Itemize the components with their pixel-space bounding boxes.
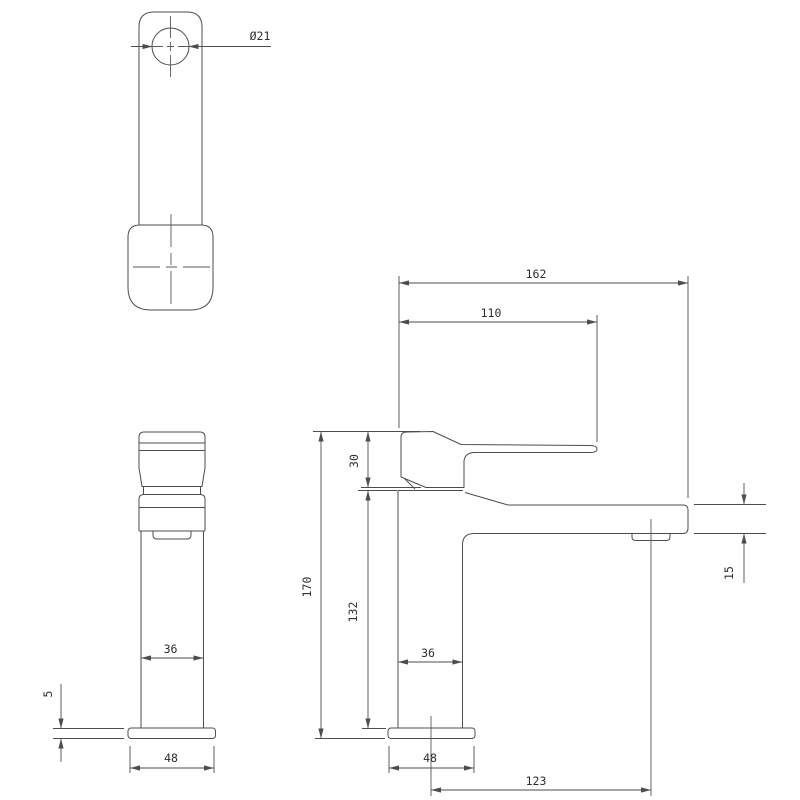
side-view: 162 110 30 170 132 36	[300, 267, 766, 796]
extension-line	[694, 505, 766, 534]
dim-side-spout-end-height: 15	[694, 483, 766, 583]
front-column-sides	[141, 531, 204, 728]
side-base-plate	[388, 728, 475, 739]
dim-side-body-depth-label: 36	[421, 646, 435, 660]
dim-front-base-thickness: 5	[41, 684, 124, 762]
front-base-plate	[128, 728, 216, 739]
front-aerator-outline	[153, 531, 191, 539]
front-view: 36 5 48	[41, 432, 216, 773]
side-handle-outline	[401, 432, 597, 488]
dim-side-overall-height-label: 170	[300, 577, 314, 598]
extension-line	[399, 276, 688, 498]
dim-side-lever-reach-label: 110	[481, 306, 502, 320]
side-body-left-top	[398, 491, 463, 729]
dim-front-body-width: 36	[141, 642, 204, 658]
dim-front-base-width: 48	[130, 746, 214, 773]
technical-drawing-canvas: Ø21 36 5 48	[0, 0, 800, 800]
front-handle-outline	[139, 432, 205, 487]
top-view: Ø21	[128, 12, 271, 310]
faucet-drawing-svg: Ø21 36 5 48	[0, 0, 800, 800]
dim-hole-diameter-label: Ø21	[250, 29, 271, 43]
extension-line	[53, 729, 124, 739]
dim-side-overall-depth-label: 162	[526, 267, 547, 281]
dim-side-spout-end-height-label: 15	[722, 566, 736, 580]
top-view-base-outline	[128, 225, 213, 310]
dim-side-overall-height: 170	[300, 432, 385, 739]
front-neck-lines	[144, 487, 201, 495]
dim-side-base-depth-label: 48	[423, 751, 437, 765]
dim-side-lever-reach: 110	[399, 306, 597, 442]
front-handle-detail-lines	[139, 443, 205, 451]
dim-front-body-width-label: 36	[164, 642, 178, 656]
dim-side-spout-outlet-offset-label: 123	[526, 774, 547, 788]
extension-line	[358, 491, 397, 729]
dim-side-spout-outlet-offset: 123	[431, 774, 651, 790]
dim-side-body-depth: 36	[398, 646, 463, 662]
dim-side-body-height: 132	[346, 491, 397, 729]
front-body-outline	[139, 495, 205, 532]
dim-side-handle-height-label: 30	[347, 454, 361, 468]
dim-side-base-depth: 48	[389, 746, 474, 773]
dim-front-base-thickness-label: 5	[41, 691, 55, 698]
dim-side-overall-depth: 162	[399, 267, 688, 498]
dim-front-base-width-label: 48	[164, 751, 178, 765]
dim-side-body-height-label: 132	[346, 602, 360, 623]
side-spout-outline	[463, 493, 689, 729]
